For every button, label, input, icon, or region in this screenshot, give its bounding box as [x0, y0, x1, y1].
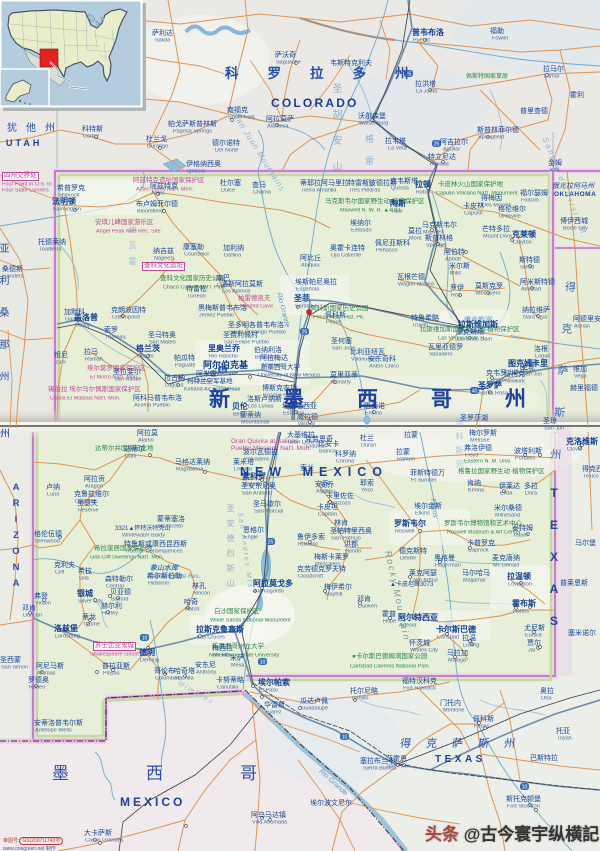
svg-text:10: 10 [342, 735, 348, 741]
svg-text:10: 10 [260, 660, 266, 666]
svg-text:10: 10 [522, 785, 528, 791]
svg-text:10: 10 [142, 636, 148, 642]
svg-text:25: 25 [434, 142, 440, 148]
svg-text:25: 25 [302, 330, 308, 336]
svg-text:25: 25 [268, 540, 274, 546]
